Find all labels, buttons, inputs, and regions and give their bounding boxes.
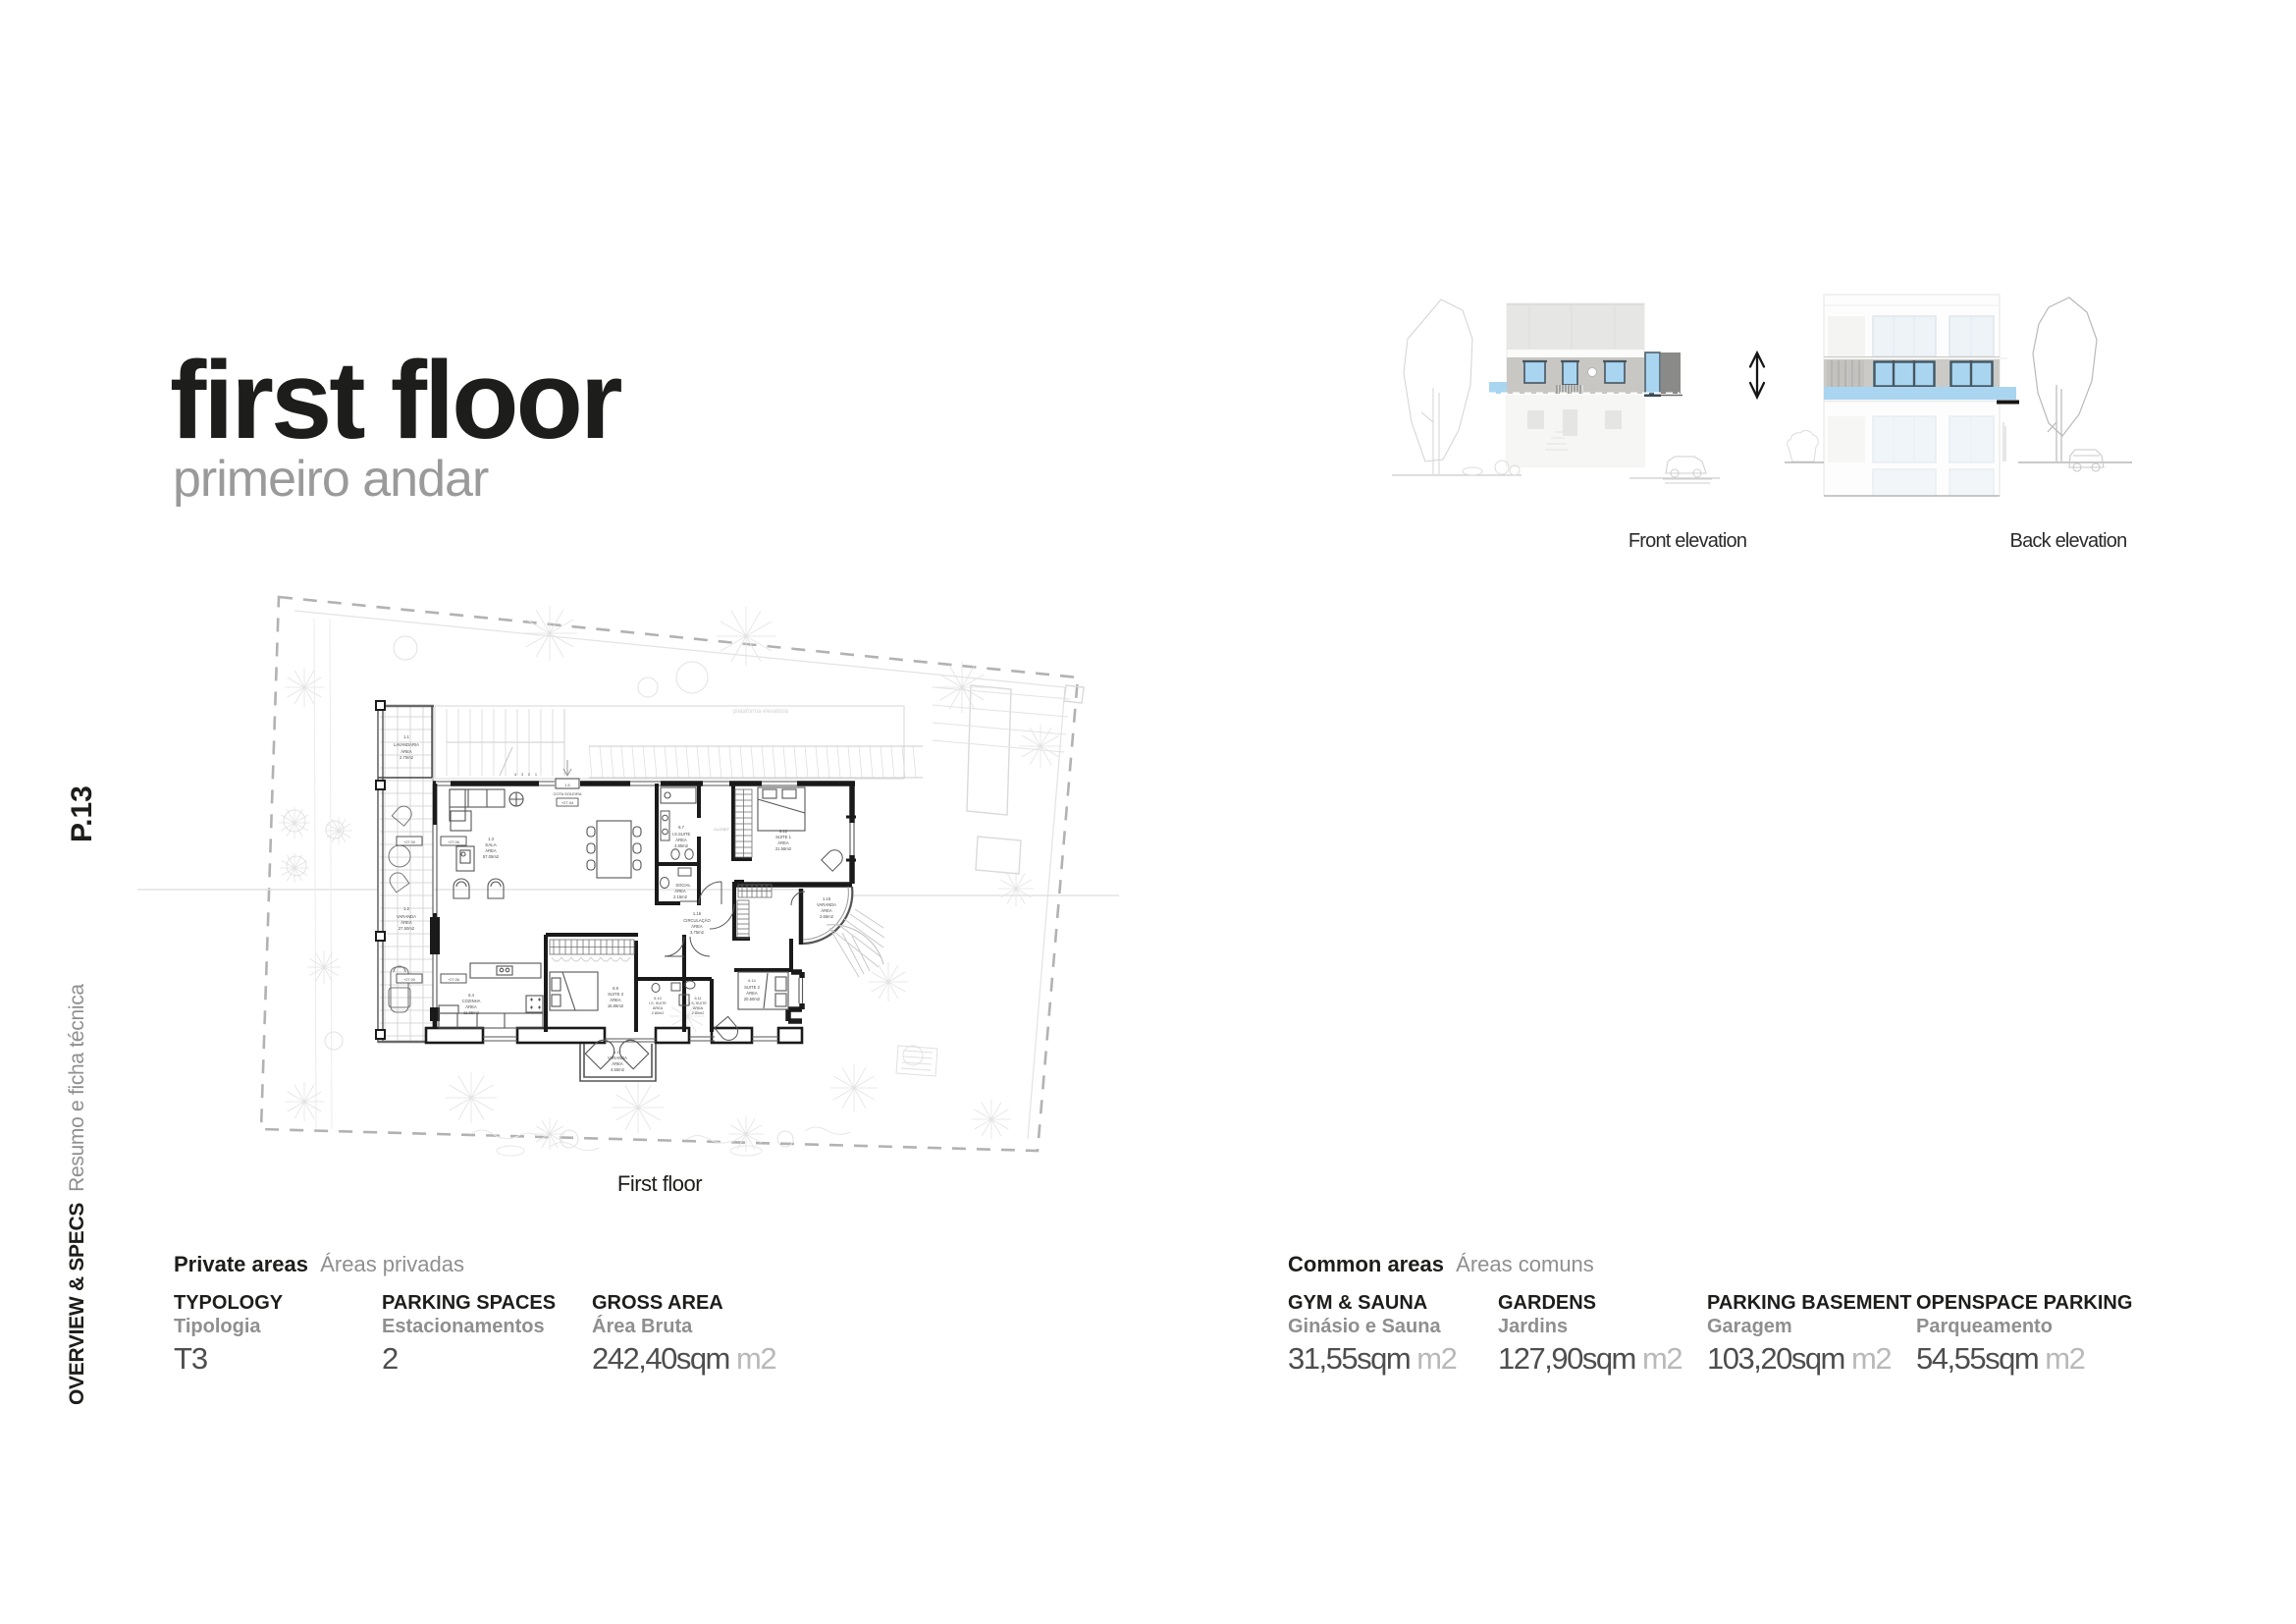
svg-text:27.50m2: 27.50m2 <box>399 926 415 931</box>
svg-text:20.50m2: 20.50m2 <box>744 997 761 1001</box>
svg-text:4.50m2: 4.50m2 <box>611 1067 625 1072</box>
svg-text:CIRCULAÇÃO: CIRCULAÇÃO <box>683 918 711 923</box>
svg-text:+27.00: +27.00 <box>403 978 415 982</box>
svg-text:SUITE 2: SUITE 2 <box>744 985 760 990</box>
svg-text:15.85m2: 15.85m2 <box>608 1003 624 1008</box>
svg-text:57.05m2: 57.05m2 <box>483 854 500 859</box>
svg-text:1.1: 1.1 <box>403 734 409 739</box>
svg-text:ÁREA: ÁREA <box>675 838 687 842</box>
svg-text:1.2: 1.2 <box>403 906 409 911</box>
svg-text:ÁREA: ÁREA <box>485 848 497 853</box>
svg-text:I.S. SUITE: I.S. SUITE <box>689 1001 707 1005</box>
svg-text:3: 3 <box>521 773 523 777</box>
svg-text:6.10: 6.10 <box>654 997 661 1001</box>
svg-text:6.9: 6.9 <box>613 986 618 991</box>
svg-text:VARANDA: VARANDA <box>397 914 416 919</box>
svg-text:SUITE 1: SUITE 1 <box>775 835 791 839</box>
svg-text:+27.04: +27.04 <box>561 800 574 805</box>
svg-text:3.75m2: 3.75m2 <box>690 930 705 935</box>
svg-text:2.80m2: 2.80m2 <box>652 1011 665 1015</box>
svg-text:ÁREA: ÁREA <box>610 998 621 1002</box>
svg-text:6.14: 6.14 <box>748 979 755 983</box>
svg-text:SALA: SALA <box>485 842 498 847</box>
svg-text:1.17: 1.17 <box>614 1051 620 1055</box>
svg-text:ÁREA: ÁREA <box>612 1061 623 1066</box>
svg-text:ÁREA: ÁREA <box>746 991 758 996</box>
svg-text:COZINHA: COZINHA <box>462 999 481 1003</box>
svg-text:I.S.SUITE: I.S.SUITE <box>672 832 691 837</box>
svg-text:CLOSET: CLOSET <box>714 827 730 832</box>
svg-text:2.15m2: 2.15m2 <box>673 894 688 899</box>
svg-text:COTA SOLEIRA: COTA SOLEIRA <box>553 791 581 796</box>
svg-text:SUITE 3: SUITE 3 <box>608 992 623 997</box>
svg-text:ÁREA: ÁREA <box>400 920 412 925</box>
svg-text:ÁREA: ÁREA <box>693 1006 704 1010</box>
svg-text:6.4: 6.4 <box>468 993 474 998</box>
svg-text:2.65m2: 2.65m2 <box>820 914 834 919</box>
svg-text:SOCIAL: SOCIAL <box>675 883 691 888</box>
svg-text:ÁREA: ÁREA <box>400 749 412 754</box>
svg-text:+27.06: +27.06 <box>448 978 459 982</box>
svg-text:ÁREA: ÁREA <box>653 1006 664 1010</box>
svg-text:2.80m2: 2.80m2 <box>692 1011 705 1015</box>
svg-text:+27.00: +27.00 <box>403 840 415 844</box>
svg-text:ÁREA: ÁREA <box>465 1004 477 1009</box>
svg-text:1.5: 1.5 <box>564 784 569 787</box>
svg-text:1: 1 <box>535 773 537 777</box>
svg-text:ÁREA: ÁREA <box>777 840 789 845</box>
svg-text:4.90m2: 4.90m2 <box>674 843 689 848</box>
svg-text:ÁREA: ÁREA <box>821 908 832 913</box>
svg-text:6.7: 6.7 <box>678 825 684 830</box>
svg-text:I.S. SUITE: I.S. SUITE <box>649 1001 667 1005</box>
svg-text:4: 4 <box>514 773 516 777</box>
svg-text:VARANDA: VARANDA <box>608 1056 627 1060</box>
svg-text:ÁREA: ÁREA <box>674 889 686 893</box>
svg-text:1.3: 1.3 <box>488 837 494 841</box>
svg-text:2.70m2: 2.70m2 <box>400 755 414 760</box>
svg-text:VARANDA: VARANDA <box>817 902 836 907</box>
svg-text:1.16: 1.16 <box>693 911 702 916</box>
svg-text:2: 2 <box>528 773 530 777</box>
svg-text:plataforma elevatória: plataforma elevatória <box>733 709 789 715</box>
svg-text:ÁREA: ÁREA <box>691 924 703 929</box>
svg-text:6.11: 6.11 <box>694 997 701 1001</box>
svg-text:+27.06: +27.06 <box>448 840 459 844</box>
svg-text:21.56m2: 21.56m2 <box>775 846 792 851</box>
svg-text:1.15: 1.15 <box>823 896 831 901</box>
svg-text:LAVANDARIA: LAVANDARIA <box>394 742 419 747</box>
